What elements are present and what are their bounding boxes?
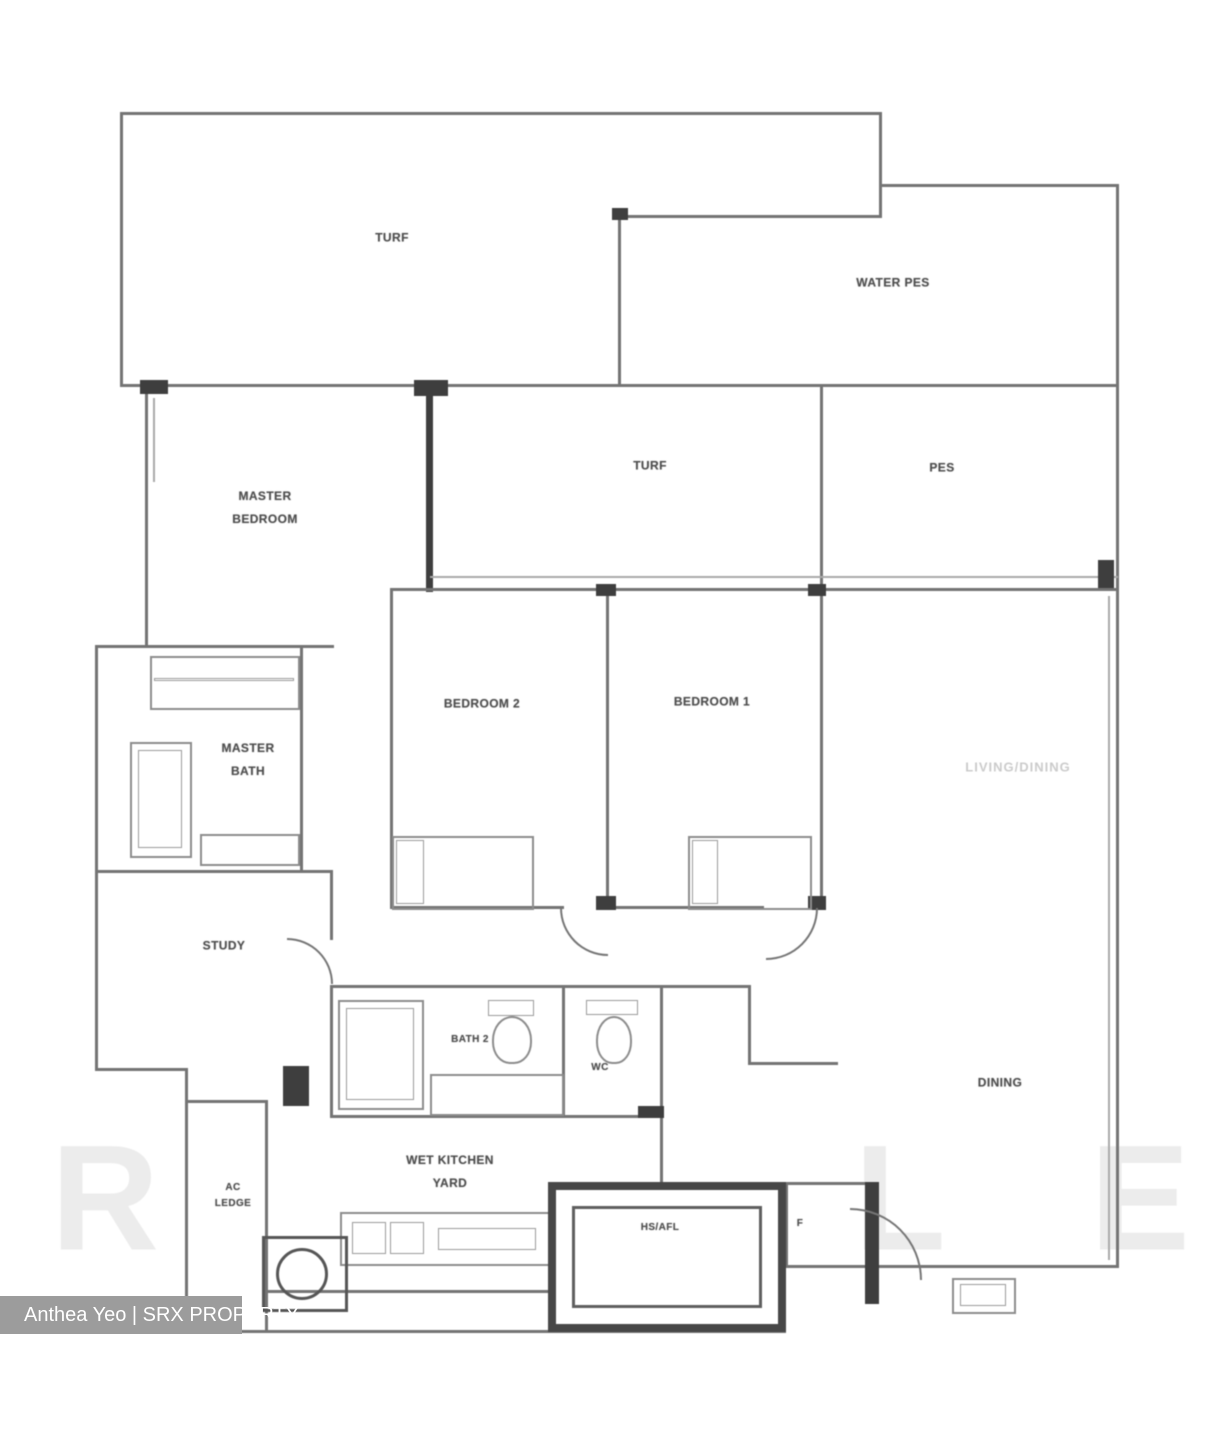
wall bbox=[140, 380, 168, 394]
wall bbox=[95, 645, 148, 648]
wall bbox=[1098, 560, 1114, 588]
room-label-turf-mid: TURF bbox=[633, 455, 667, 478]
room-label-pes: PES bbox=[929, 457, 954, 480]
wall bbox=[748, 1062, 838, 1065]
wall bbox=[879, 112, 882, 218]
window bbox=[153, 398, 155, 482]
room-label-master-bath: MASTER BATH bbox=[221, 737, 274, 783]
wall bbox=[95, 645, 98, 1071]
washer-drum-icon bbox=[276, 1248, 328, 1300]
wall bbox=[283, 1066, 309, 1106]
wall bbox=[618, 215, 621, 387]
wardrobe bbox=[150, 656, 300, 710]
watermark-credit: Anthea Yeo | SRX PROPERTY bbox=[0, 1296, 242, 1334]
wall bbox=[618, 215, 881, 218]
room-label-wc: WC bbox=[591, 1060, 608, 1076]
wall bbox=[330, 985, 750, 988]
wall bbox=[120, 112, 881, 115]
toilet-tank bbox=[488, 1000, 534, 1016]
shower-tray bbox=[346, 1008, 414, 1100]
room-label-fridge: F bbox=[797, 1216, 804, 1232]
toilet-icon bbox=[492, 1016, 532, 1064]
wardrobe-shelf-line bbox=[154, 678, 294, 681]
wall bbox=[808, 584, 826, 596]
wall bbox=[330, 985, 333, 1117]
room-label-study: STUDY bbox=[203, 935, 246, 958]
wall bbox=[120, 112, 123, 387]
room-label-turf: TURF bbox=[375, 227, 409, 250]
room-label-water-pes: WATER PES bbox=[856, 272, 929, 295]
room-label-hs-afl: HS/AFL bbox=[641, 1220, 680, 1236]
hob bbox=[390, 1222, 424, 1254]
wall bbox=[660, 985, 663, 1117]
wall bbox=[596, 584, 616, 596]
sink bbox=[352, 1222, 386, 1254]
wall bbox=[145, 384, 148, 648]
wall bbox=[785, 1265, 1119, 1268]
wall bbox=[612, 208, 628, 220]
study-door-arc bbox=[287, 938, 333, 984]
bedroom1-door-arc bbox=[766, 908, 818, 960]
room-label-master-bedroom: MASTER BEDROOM bbox=[232, 485, 297, 531]
wall bbox=[879, 184, 1119, 187]
vanity bbox=[200, 834, 300, 866]
wall bbox=[95, 1068, 188, 1071]
pillow bbox=[692, 840, 718, 904]
counter-detail bbox=[438, 1228, 536, 1250]
wall bbox=[145, 645, 334, 648]
vanity bbox=[430, 1074, 564, 1116]
wall bbox=[820, 384, 823, 908]
shower-tray bbox=[138, 750, 182, 848]
wall bbox=[330, 870, 333, 940]
room-label-bedroom-2: BEDROOM 2 bbox=[444, 693, 520, 716]
wall bbox=[606, 588, 609, 908]
bedroom2-door-arc bbox=[560, 908, 608, 956]
watermark-letter: R bbox=[51, 1112, 159, 1285]
room-label-bath-2: BATH 2 bbox=[451, 1032, 489, 1048]
wall bbox=[185, 1068, 188, 1332]
room-label-living-dining: LIVING/DINING bbox=[965, 756, 1070, 781]
toilet-icon bbox=[596, 1016, 632, 1064]
wall bbox=[660, 1115, 663, 1185]
wall bbox=[1116, 184, 1119, 1268]
wall bbox=[95, 870, 333, 873]
floor-plan-page: R L E bbox=[0, 0, 1222, 1440]
window bbox=[430, 576, 1118, 578]
room-label-dining: DINING bbox=[978, 1072, 1022, 1095]
floor-plan: R L E bbox=[0, 0, 1222, 1440]
room-label-wet-kitchen-yard: WET KITCHEN YARD bbox=[406, 1149, 494, 1195]
wall bbox=[414, 380, 448, 396]
wall bbox=[390, 588, 1119, 591]
wall bbox=[185, 1100, 268, 1103]
window bbox=[1108, 596, 1110, 1260]
wall bbox=[300, 645, 303, 873]
pillow bbox=[396, 840, 424, 904]
wall bbox=[426, 384, 433, 592]
watermark-letter: E bbox=[1090, 1112, 1190, 1285]
room-label-ac-ledge: AC LEDGE bbox=[215, 1180, 251, 1212]
room-label-bedroom-1: BEDROOM 1 bbox=[674, 691, 750, 714]
entrance-step-inner bbox=[960, 1284, 1006, 1306]
wall bbox=[638, 1106, 664, 1118]
wall bbox=[748, 985, 751, 1065]
toilet-tank bbox=[586, 1000, 638, 1015]
